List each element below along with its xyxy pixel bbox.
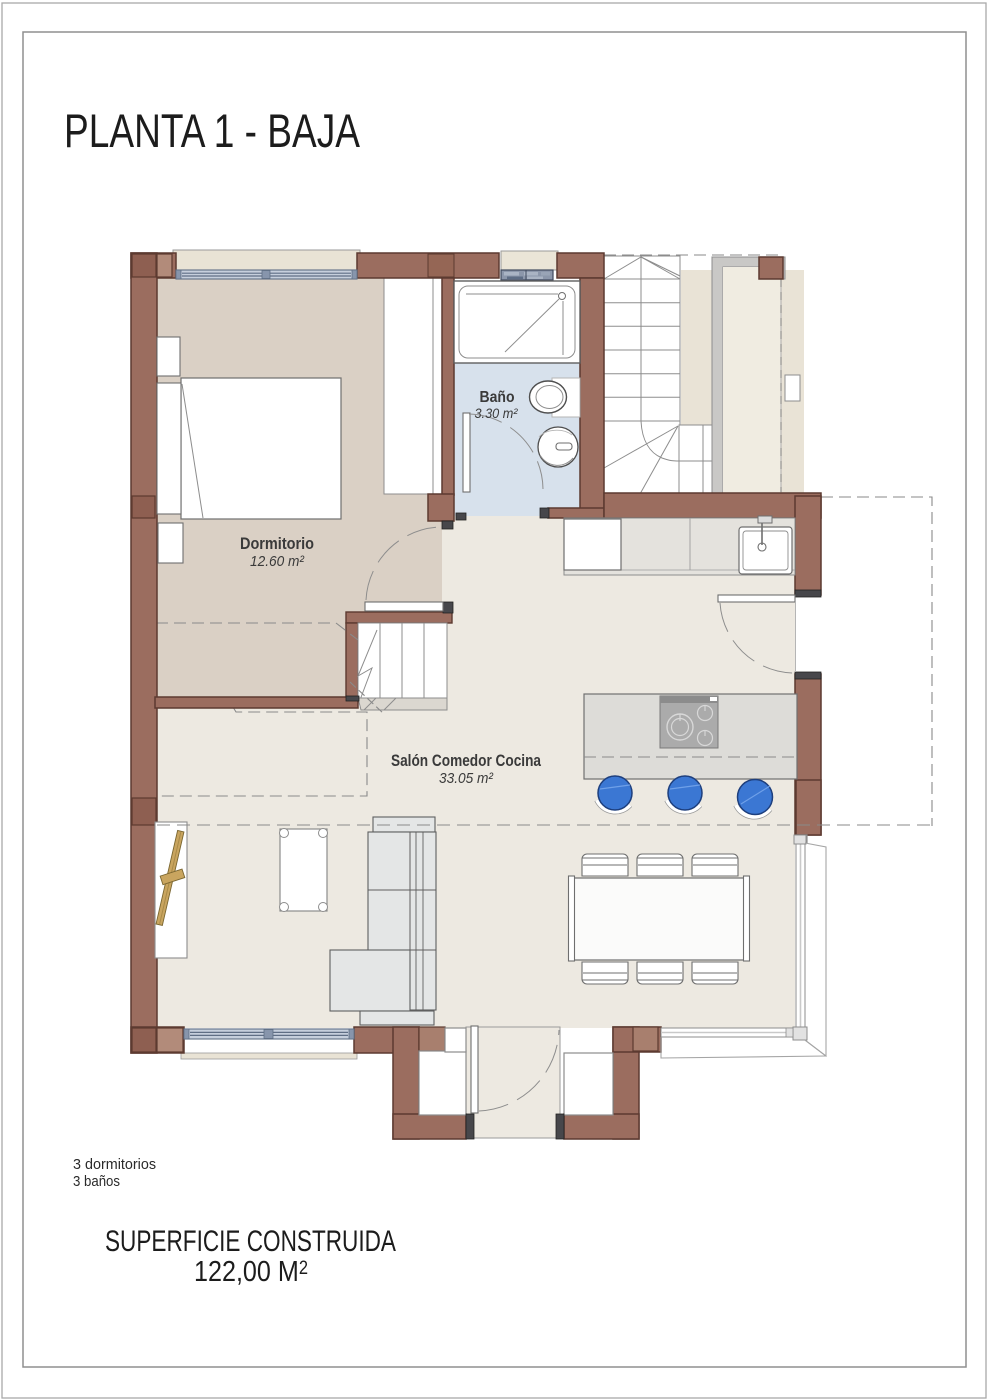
svg-text:3 baños: 3 baños	[73, 1173, 120, 1190]
svg-text:PLANTA 1 - BAJA: PLANTA 1 - BAJA	[64, 104, 361, 157]
svg-text:Dormitorio: Dormitorio	[240, 534, 314, 553]
svg-text:3.30 m²: 3.30 m²	[475, 405, 519, 421]
svg-text:Salón Comedor Cocina: Salón Comedor Cocina	[391, 751, 541, 770]
svg-text:SUPERFICIE CONSTRUIDA: SUPERFICIE CONSTRUIDA	[105, 1225, 396, 1258]
svg-text:12.60 m²: 12.60 m²	[250, 553, 305, 570]
svg-text:122,00 M2: 122,00 M2	[194, 1256, 308, 1288]
svg-text:33.05 m²: 33.05 m²	[439, 770, 494, 787]
svg-text:3 dormitorios: 3 dormitorios	[73, 1156, 156, 1173]
svg-text:Baño: Baño	[480, 389, 515, 406]
